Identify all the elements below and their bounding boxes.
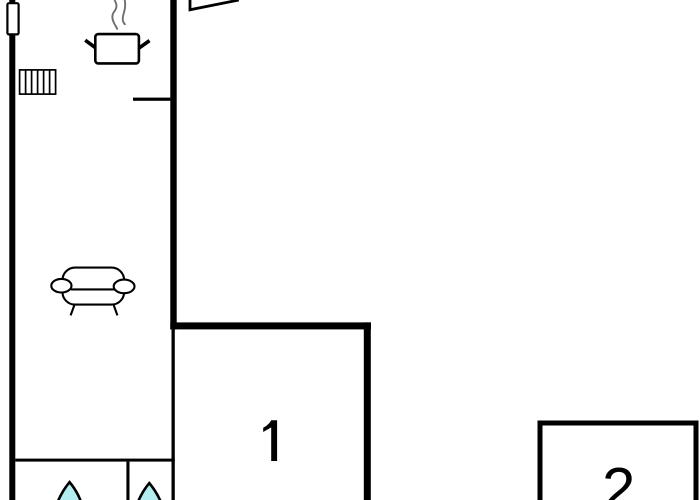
svg-text:2: 2 [602,456,635,500]
